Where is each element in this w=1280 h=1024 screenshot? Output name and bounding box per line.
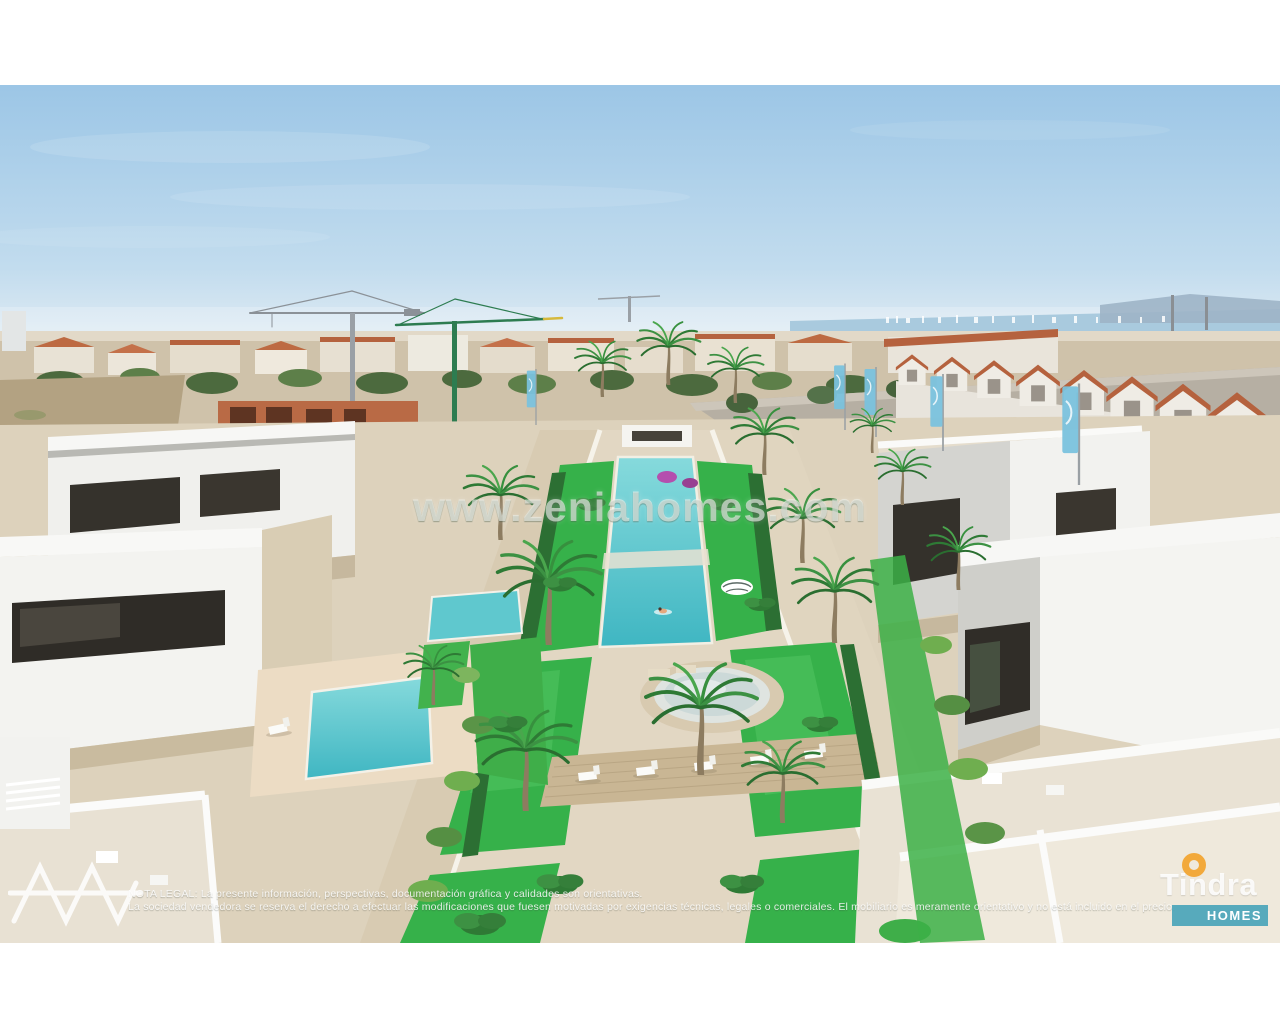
legal-line-2: La sociedad vendedora se reserva el dere… bbox=[128, 901, 1175, 914]
legal-line-1: NOTA LEGAL: La presente información, per… bbox=[128, 888, 1175, 901]
render-scene bbox=[0, 85, 1280, 943]
bougainvillea bbox=[657, 471, 677, 483]
peaks-logo-icon bbox=[8, 855, 143, 933]
legal-note: NOTA LEGAL: La presente información, per… bbox=[128, 888, 1175, 914]
striped-daybed bbox=[721, 579, 753, 595]
developer-logo: Tindra HOMES bbox=[1156, 851, 1280, 933]
sky bbox=[0, 85, 1280, 347]
developer-name: Tindra bbox=[1160, 867, 1257, 903]
page: www.zeniahomes.com NOTA LEGAL: La presen… bbox=[0, 0, 1280, 1024]
render-photo: www.zeniahomes.com NOTA LEGAL: La presen… bbox=[0, 85, 1280, 943]
homes-bar: HOMES bbox=[1172, 905, 1268, 926]
